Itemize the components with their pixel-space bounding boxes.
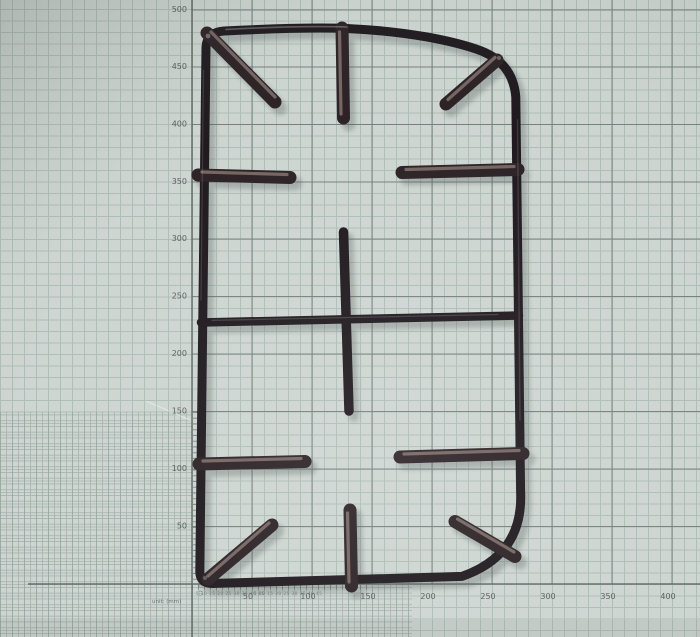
photo-canvas: 500 450 400 350 300 250 200 150 100 50 5…: [0, 0, 700, 637]
product-photo-pan-support-on-graph-paper: 500 450 400 350 300 250 200 150 100 50 5…: [0, 0, 700, 637]
bottom-edge-shade: [0, 620, 700, 637]
top-left-shade: [0, 0, 360, 300]
